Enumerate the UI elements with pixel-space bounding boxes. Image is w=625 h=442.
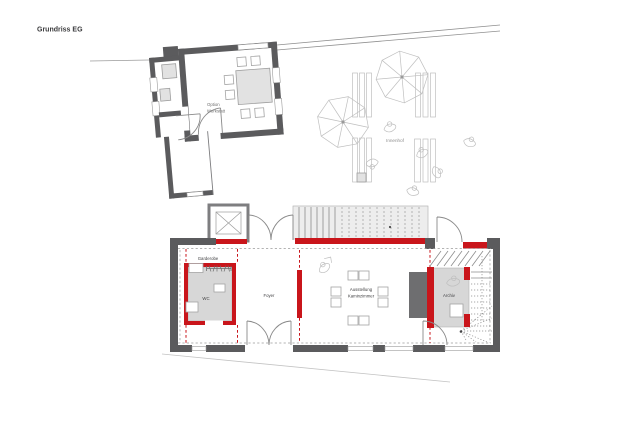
- sink: [189, 264, 203, 273]
- window: [238, 43, 268, 50]
- wall: [220, 128, 283, 139]
- wall-bottom: [293, 345, 348, 352]
- boundary-line-left: [90, 60, 149, 61]
- wall: [149, 58, 161, 138]
- red-wall: [184, 263, 188, 325]
- boundary-line-bottom: [162, 354, 450, 382]
- page-title: Grundriss EG: [37, 27, 83, 34]
- bench-group-bottom-left: [353, 138, 372, 182]
- wall-bottom: [373, 345, 385, 352]
- room-label-ausstellung: Ausstellung: [350, 287, 373, 292]
- cistern: [214, 284, 225, 292]
- red-wall: [429, 267, 434, 328]
- person-figure-icon: [406, 185, 420, 197]
- entrance-double-door-south: [247, 321, 291, 345]
- fence-line-upper: [277, 25, 500, 45]
- chair: [241, 109, 251, 119]
- person-figure-icon: [414, 145, 430, 160]
- floor-plan-page: Option Werkstatt: [0, 0, 625, 442]
- chair: [378, 287, 388, 296]
- wall: [159, 110, 181, 117]
- furniture: [160, 88, 171, 101]
- chair: [331, 287, 341, 296]
- furniture: [162, 64, 177, 79]
- chair: [251, 56, 261, 66]
- workshop-building: Option Werkstatt: [148, 39, 284, 200]
- wall-left: [170, 238, 178, 352]
- archiv-box: [450, 304, 463, 317]
- window: [348, 347, 373, 351]
- entrance-double-door-north: [249, 215, 293, 240]
- window: [385, 347, 413, 351]
- chair: [237, 57, 247, 67]
- red-wall: [232, 263, 236, 325]
- winder-treads-top: [430, 251, 490, 266]
- table: [236, 68, 272, 104]
- person-figure-icon: [315, 255, 336, 275]
- room-label-foyer: Foyer: [264, 293, 276, 298]
- wall-bottom: [413, 345, 445, 352]
- door-arc-north: [437, 217, 462, 242]
- toilet: [186, 302, 198, 312]
- room-label-option: Option: [207, 102, 220, 107]
- window: [150, 77, 158, 92]
- wing-edge: [208, 131, 214, 195]
- tree-icon: [318, 97, 369, 148]
- window: [272, 67, 280, 82]
- person-figure-icon: [430, 164, 445, 180]
- ausstellung-room: [315, 255, 433, 328]
- skylight-shaft: [209, 205, 248, 241]
- person-figure-icon: [365, 158, 379, 171]
- fireplace: [409, 272, 427, 318]
- wall-corner: [425, 238, 435, 249]
- room-label-kaminzimmer: Kaminzimmer: [348, 294, 375, 299]
- winder-treads-right-solid: [471, 272, 492, 278]
- bench-group-top-right: [416, 73, 436, 117]
- wc-door-opening: [205, 321, 223, 327]
- bench-group-top-left: [353, 73, 372, 117]
- red-wall: [297, 270, 302, 318]
- chair: [378, 298, 388, 307]
- red-wall: [464, 314, 470, 327]
- window: [445, 347, 473, 351]
- fence-line-lower: [277, 31, 500, 50]
- red-wall: [295, 238, 428, 244]
- window: [275, 98, 283, 114]
- chair: [224, 75, 234, 85]
- floor-plan-drawing: Option Werkstatt: [0, 0, 625, 442]
- red-wall: [464, 267, 470, 280]
- red-wall: [216, 239, 247, 244]
- chair: [348, 271, 358, 280]
- stair-walkline-dot: [460, 330, 463, 333]
- wall: [164, 137, 174, 199]
- room-label-garderobe: Garderobe: [198, 256, 219, 261]
- chair: [359, 271, 369, 280]
- site-label-innenhof: Innenhof: [386, 138, 405, 143]
- person-figure-icon: [463, 135, 477, 148]
- red-wall: [463, 242, 487, 249]
- window: [152, 101, 160, 116]
- stair-hall: [423, 217, 492, 345]
- wall-right: [493, 242, 500, 352]
- tree-icon: [376, 51, 428, 103]
- room-label-werkstatt: Werkstatt: [207, 109, 226, 114]
- wall-bottom: [473, 345, 500, 352]
- room-label-archiv: Archiv: [443, 293, 456, 298]
- chair: [225, 90, 235, 100]
- stair-walkline-dot: [389, 226, 391, 228]
- wall: [271, 42, 284, 135]
- wc-room: [184, 263, 236, 326]
- chair: [348, 316, 358, 325]
- window: [192, 347, 206, 351]
- wall-top-left: [170, 238, 216, 245]
- exterior-stair: [293, 206, 428, 239]
- chair: [255, 108, 265, 118]
- chair: [359, 316, 369, 325]
- wall-bottom: [170, 345, 192, 352]
- stair-slab: [293, 206, 428, 239]
- wall-bottom: [206, 345, 245, 352]
- person-figure-icon: [382, 120, 397, 134]
- workshop-main-room: [163, 39, 284, 143]
- room-label-wc: WC: [202, 296, 209, 301]
- wc-floor: [188, 267, 232, 321]
- chair: [331, 298, 341, 307]
- bench-group-bottom-right: [415, 139, 436, 182]
- courtyard: [318, 51, 477, 196]
